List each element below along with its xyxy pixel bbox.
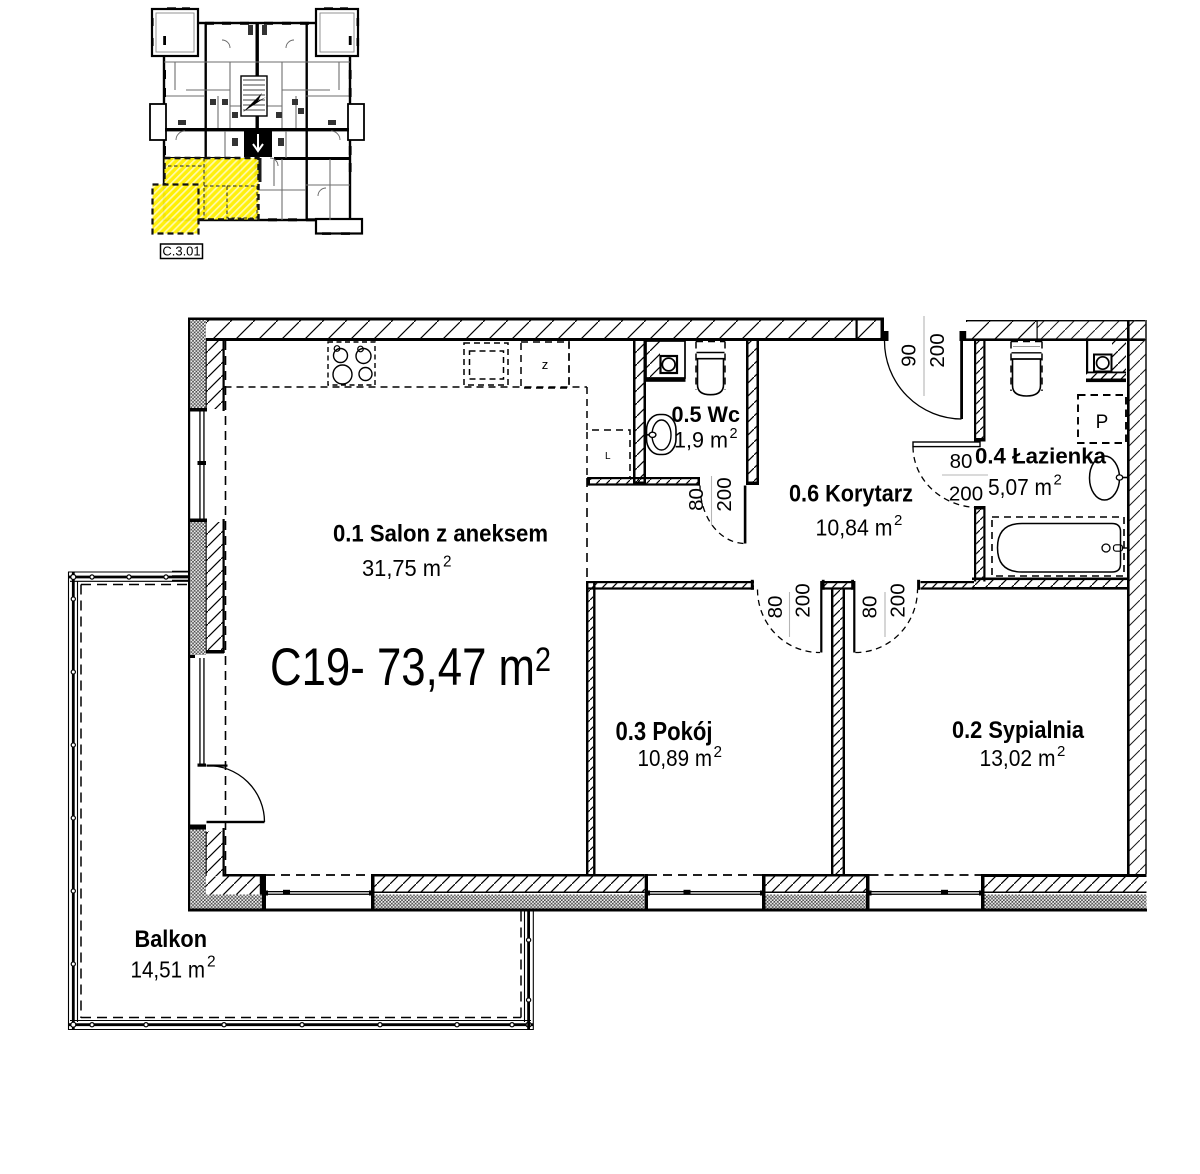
svg-text:P: P [1096, 412, 1109, 433]
svg-text:1,9 m: 1,9 m [674, 428, 728, 453]
svg-text:0.6 Korytarz: 0.6 Korytarz [789, 481, 913, 508]
svg-text:2: 2 [714, 744, 723, 761]
svg-text:2: 2 [207, 954, 216, 971]
svg-text:80: 80 [685, 488, 708, 511]
svg-text:2: 2 [894, 512, 902, 529]
svg-text:0.5 Wc: 0.5 Wc [672, 402, 741, 427]
svg-text:2: 2 [730, 426, 738, 442]
svg-text:80: 80 [764, 596, 787, 619]
svg-text:90: 90 [897, 344, 920, 367]
svg-text:14,51 m: 14,51 m [131, 957, 206, 983]
svg-text:13,02 m: 13,02 m [980, 745, 1056, 771]
svg-text:0.4 Łazienka: 0.4 Łazienka [975, 444, 1106, 469]
svg-text:10,89 m: 10,89 m [638, 745, 713, 771]
svg-text:2: 2 [443, 554, 452, 571]
svg-text:C19- 73,47 m: C19- 73,47 m [270, 638, 535, 697]
svg-text:200: 200 [886, 583, 909, 617]
svg-text:200: 200 [926, 333, 949, 367]
svg-text:200: 200 [949, 483, 983, 506]
svg-text:2: 2 [1054, 472, 1062, 489]
svg-text:80: 80 [950, 450, 973, 473]
svg-text:200: 200 [713, 477, 736, 511]
svg-text:z: z [542, 357, 549, 372]
svg-text:31,75 m: 31,75 m [362, 555, 441, 581]
svg-text:5,07 m: 5,07 m [988, 474, 1052, 500]
svg-text:0.1 Salon z aneksem: 0.1 Salon z aneksem [333, 521, 548, 548]
svg-text:2: 2 [535, 641, 551, 679]
svg-text:C.3.01: C.3.01 [162, 244, 200, 259]
svg-text:200: 200 [791, 583, 814, 617]
svg-text:80: 80 [858, 596, 881, 619]
svg-text:10,84 m: 10,84 m [816, 515, 893, 541]
svg-text:Balkon: Balkon [135, 926, 208, 953]
svg-text:0.3 Pokój: 0.3 Pokój [616, 716, 713, 746]
svg-text:2: 2 [1057, 743, 1065, 760]
svg-text:0.2 Sypialnia: 0.2 Sypialnia [952, 717, 1084, 744]
svg-text:L: L [605, 451, 611, 462]
